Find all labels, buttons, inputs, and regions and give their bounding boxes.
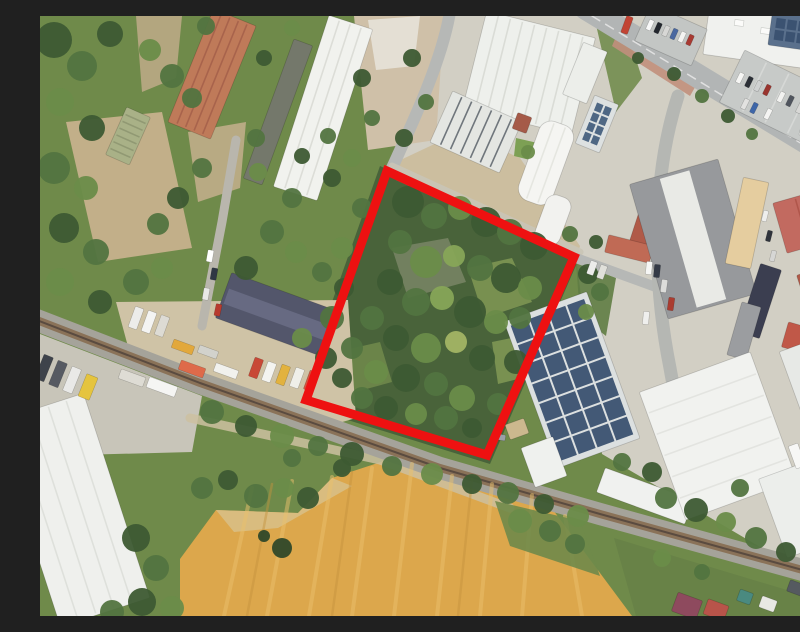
tree-canopy: [746, 128, 758, 140]
tree-canopy: [343, 149, 361, 167]
tree-canopy: [421, 463, 443, 485]
tree-canopy: [312, 262, 332, 282]
tree-canopy: [462, 418, 482, 438]
vehicle: [645, 261, 652, 275]
tree-canopy: [421, 203, 447, 229]
tree-canopy: [143, 555, 169, 581]
tree-canopy: [122, 524, 150, 552]
tree-canopy: [88, 290, 112, 314]
tree-canopy: [653, 549, 671, 567]
tree-canopy: [694, 564, 710, 580]
tree-canopy: [234, 256, 258, 280]
tree-canopy: [235, 415, 257, 437]
tree-canopy: [613, 453, 631, 471]
tree-canopy: [392, 364, 420, 392]
tree-canopy: [377, 269, 403, 295]
tree-canopy: [192, 158, 212, 178]
tree-canopy: [418, 94, 434, 110]
tree-canopy: [454, 296, 486, 328]
tree-canopy: [695, 89, 709, 103]
tree-canopy: [721, 109, 735, 123]
tree-canopy: [256, 50, 272, 66]
tree-canopy: [353, 69, 371, 87]
tree-canopy: [331, 237, 353, 259]
tree-canopy: [247, 129, 265, 147]
tree-canopy: [218, 470, 238, 490]
tree-canopy: [445, 331, 467, 353]
tr-store-solar-array: [768, 16, 800, 51]
tree-canopy: [405, 403, 427, 425]
tree-canopy: [123, 269, 149, 295]
tree-canopy: [469, 345, 495, 371]
tree-canopy: [244, 484, 268, 508]
tree-canopy: [284, 20, 300, 36]
tree-canopy: [260, 220, 284, 244]
tree-canopy: [745, 527, 767, 549]
tree-canopy: [518, 276, 542, 300]
vehicle: [653, 264, 660, 278]
tree-canopy: [395, 129, 413, 147]
tree-canopy: [151, 257, 173, 279]
tree-canopy: [49, 213, 79, 243]
tree-canopy: [684, 498, 708, 522]
tree-canopy: [182, 88, 202, 108]
tree-canopy: [351, 387, 373, 409]
tree-canopy: [430, 286, 454, 310]
tree-canopy: [46, 268, 74, 296]
tree-canopy: [360, 306, 384, 330]
tree-canopy: [484, 310, 508, 334]
tree-canopy: [642, 462, 662, 482]
tree-canopy: [521, 145, 535, 159]
tree-canopy: [562, 226, 578, 242]
tree-canopy: [67, 51, 97, 81]
tree-canopy: [509, 307, 531, 329]
tree-canopy: [191, 477, 213, 499]
tr-store-solar-array-solar-panel: [787, 19, 798, 30]
tree-canopy: [333, 459, 351, 477]
tree-canopy: [591, 283, 609, 301]
tree-canopy: [364, 110, 380, 126]
tree-canopy: [388, 230, 412, 254]
tree-canopy: [491, 263, 521, 293]
tr-store-solar-array-solar-panel: [774, 30, 785, 41]
tree-canopy: [147, 213, 169, 235]
tree-canopy: [285, 241, 307, 263]
tree-canopy: [382, 456, 402, 476]
tree-canopy: [411, 333, 441, 363]
tree-canopy: [434, 406, 458, 430]
tree-canopy: [323, 169, 341, 187]
tree-canopy: [578, 304, 594, 320]
tree-canopy: [282, 188, 302, 208]
tree-canopy: [332, 368, 352, 388]
tree-canopy: [272, 538, 292, 558]
tree-canopy: [449, 385, 475, 411]
tree-canopy: [567, 505, 589, 527]
tree-canopy: [534, 494, 554, 514]
aerial-photo-satellite-view: [40, 16, 800, 616]
tree-canopy: [200, 400, 224, 424]
tree-canopy: [589, 235, 603, 249]
tree-canopy: [258, 530, 270, 542]
tree-canopy: [443, 245, 465, 267]
tree-canopy: [270, 424, 294, 448]
tree-canopy: [74, 176, 98, 200]
tree-canopy: [297, 487, 319, 509]
tree-canopy: [97, 21, 123, 47]
tree-canopy: [731, 479, 749, 497]
tree-canopy: [410, 246, 442, 278]
tree-canopy: [320, 128, 336, 144]
tree-canopy: [46, 88, 74, 116]
tree-canopy: [83, 239, 109, 265]
tree-canopy: [249, 163, 267, 181]
tree-canopy: [292, 328, 312, 348]
tree-canopy: [167, 187, 189, 209]
tree-canopy: [79, 115, 105, 141]
tree-canopy: [508, 509, 532, 533]
vehicle: [642, 311, 649, 325]
tree-canopy: [667, 67, 681, 81]
tree-canopy: [462, 474, 482, 494]
tree-canopy: [655, 487, 677, 509]
tree-canopy: [128, 588, 156, 616]
tree-canopy: [716, 512, 736, 532]
tree-canopy: [424, 372, 448, 396]
tree-canopy: [776, 542, 796, 562]
tree-canopy: [392, 186, 424, 218]
tree-canopy: [283, 449, 301, 467]
tree-canopy: [308, 436, 328, 456]
tree-canopy: [565, 534, 585, 554]
tree-canopy: [467, 255, 493, 281]
tree-canopy: [403, 49, 421, 67]
tree-canopy: [632, 52, 644, 64]
tree-canopy: [197, 17, 215, 35]
tree-canopy: [539, 520, 561, 542]
tree-canopy: [274, 478, 294, 498]
tree-canopy: [139, 39, 161, 61]
tree-canopy: [497, 482, 519, 504]
tree-canopy: [402, 288, 430, 316]
tree-canopy: [374, 396, 398, 420]
tr-store-solar-array-solar-panel: [775, 18, 786, 29]
tree-canopy: [160, 64, 184, 88]
tree-canopy: [341, 337, 363, 359]
tree-canopy: [294, 148, 310, 164]
tr-retail-store-rooftop-unit: [734, 19, 744, 26]
tr-store-solar-array-solar-panel: [785, 31, 796, 42]
map-canvas: [40, 16, 800, 616]
tree-canopy: [383, 325, 409, 351]
tree-canopy: [364, 360, 388, 384]
